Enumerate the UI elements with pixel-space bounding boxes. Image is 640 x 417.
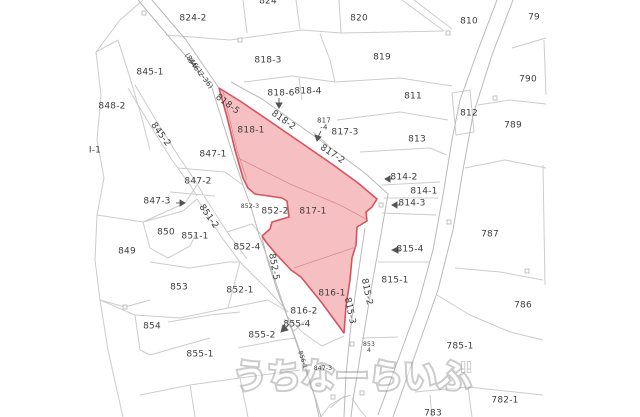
parcel-label: 815-1 xyxy=(381,277,408,286)
cadastral-map: うちなーらいふ !! 824-282482081079818-3819845-1… xyxy=(0,0,640,417)
parcel-label: 852-2 xyxy=(261,208,288,217)
parcel-label: 845-1 xyxy=(136,69,163,78)
parcel-label: 824-2 xyxy=(179,15,206,24)
parcel-label: 810 xyxy=(460,18,478,27)
parcel-label: 816-1 xyxy=(318,290,345,299)
parcel-label: 847-3 xyxy=(314,366,332,372)
parcel-label: I-1 xyxy=(89,147,101,156)
parcel-label: 79 xyxy=(528,14,540,23)
parcel-label: 852-3 xyxy=(241,204,259,210)
parcel-label: 814-1 xyxy=(410,188,437,197)
parcel-label: 811 xyxy=(404,93,422,102)
parcel-label: 824 xyxy=(259,0,277,7)
parcel-label: 855-1 xyxy=(186,351,213,360)
parcel-label: 790 xyxy=(519,76,537,85)
parcel-label: 851-1 xyxy=(181,233,208,242)
parcel-label: 787 xyxy=(481,231,499,240)
parcel-label: 847-1 xyxy=(199,151,226,160)
parcel-label: 820 xyxy=(350,15,368,24)
parcel-label: 855-2 xyxy=(248,332,275,341)
parcel-label: 819 xyxy=(373,54,391,63)
parcel-label: 855-4 xyxy=(283,321,310,330)
watermark: うちなーらいふ xyxy=(233,357,471,397)
parcel-label: 816-2 xyxy=(290,308,317,317)
parcel-label: 818-4 xyxy=(294,88,321,97)
parcel-label: 847-2 xyxy=(184,178,211,187)
parcel-label: 812 xyxy=(460,110,478,119)
parcel-label: 818-1 xyxy=(237,127,264,136)
parcel-label: 813 xyxy=(408,136,426,145)
parcel-label: 785-1 xyxy=(446,343,473,352)
parcel-label: 786 xyxy=(514,302,532,311)
parcel-label: 852-1 xyxy=(226,287,253,296)
parcel-label: 850 xyxy=(157,229,175,238)
parcel-label: 847-3 xyxy=(143,198,170,207)
parcel-label: 4 xyxy=(367,348,371,354)
parcel-label: 853 xyxy=(170,284,188,293)
parcel-label: 783 xyxy=(424,410,442,417)
parcel-label: 815-4 xyxy=(396,246,423,255)
parcel-label: 789 xyxy=(504,122,522,131)
parcel-label: 817-1 xyxy=(299,208,326,217)
parcel-label: 814-3 xyxy=(398,200,425,209)
watermark-suffix: !! xyxy=(460,361,472,376)
parcel-label: 854 xyxy=(143,323,161,332)
parcel-label: 782-1 xyxy=(491,397,518,406)
parcel-label: 818-6 xyxy=(267,90,294,99)
parcel-label: 848-2 xyxy=(98,103,125,112)
parcel-label: 852-4 xyxy=(233,244,260,253)
parcel-label: 817-3 xyxy=(331,129,358,138)
parcel-label: 818-3 xyxy=(254,57,281,66)
parcel-label: 849 xyxy=(118,248,136,257)
parcel-label: -4 xyxy=(320,125,327,132)
parcel-label: 814-2 xyxy=(390,174,417,183)
